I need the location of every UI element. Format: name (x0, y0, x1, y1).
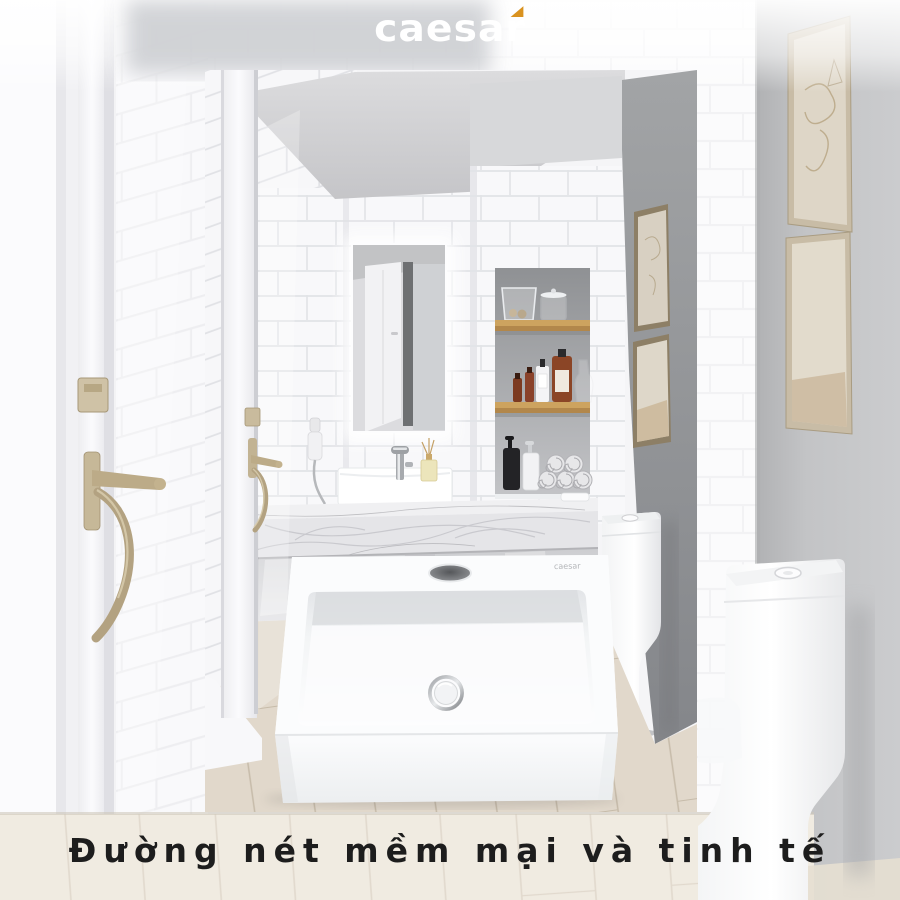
brand-logo: caesar (378, 10, 521, 47)
flush-button-inset (622, 515, 638, 521)
niche-column (470, 166, 622, 516)
inset-frame-lower (633, 334, 671, 448)
mirror (343, 236, 455, 442)
niche-glassware (502, 288, 567, 320)
faucet-hole (429, 565, 471, 582)
wood-shelf-upper (495, 320, 590, 335)
product-sink: caesar (252, 546, 632, 812)
sink-brand-mark: caesar (554, 562, 581, 571)
sink-bowl (298, 590, 595, 726)
soap-dish (561, 493, 589, 501)
inset-frame-upper (634, 204, 670, 332)
wall-frame-lower (786, 232, 852, 434)
promo-poster: caesar caesar Đường nét mềm mại và tinh … (0, 0, 900, 900)
brand-logo-text: caesar (374, 10, 526, 47)
wood-shelf-lower (495, 402, 590, 417)
soffit (470, 76, 622, 168)
caption-text: Đường nét mềm mại và tinh tế (0, 831, 900, 870)
